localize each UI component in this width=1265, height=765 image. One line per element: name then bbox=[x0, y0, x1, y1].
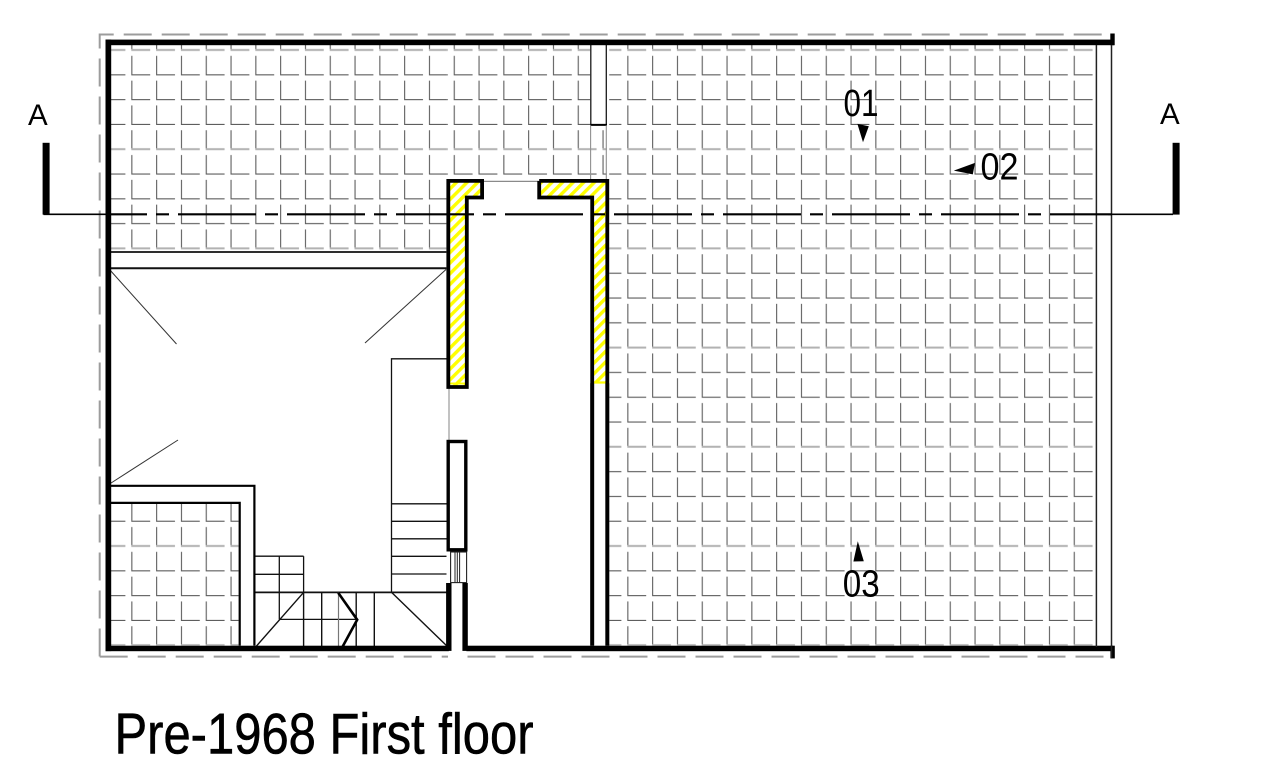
svg-text:03: 03 bbox=[843, 564, 880, 606]
svg-text:A: A bbox=[1160, 98, 1180, 131]
svg-text:Pre-1968 First floor: Pre-1968 First floor bbox=[115, 703, 534, 765]
svg-text:A: A bbox=[28, 99, 48, 132]
svg-text:02: 02 bbox=[981, 147, 1019, 189]
svg-text:01: 01 bbox=[844, 83, 879, 125]
